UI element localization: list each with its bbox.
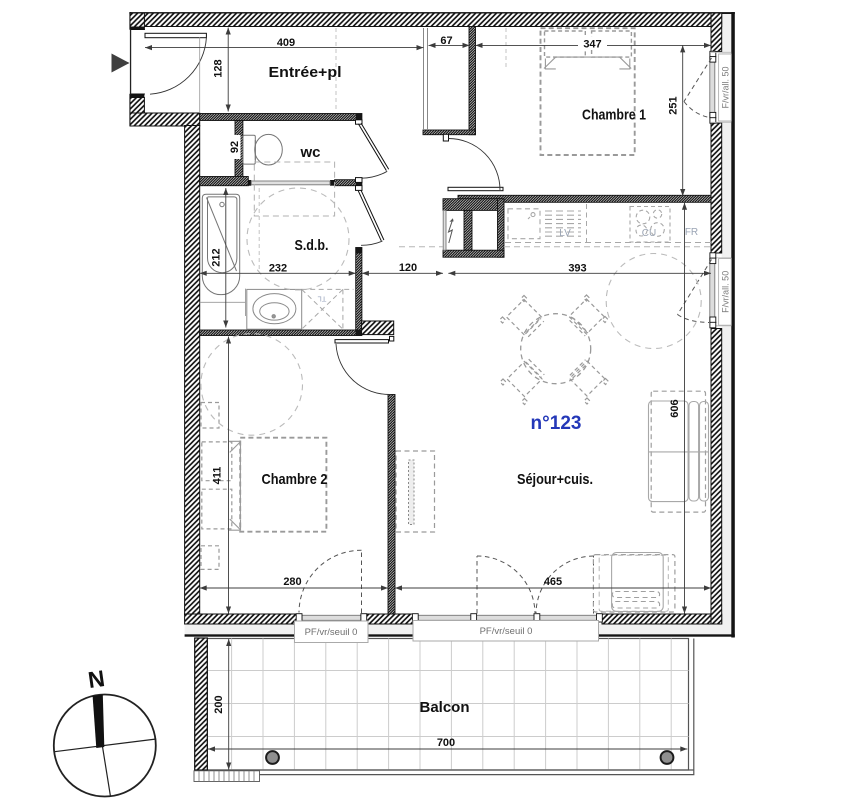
svg-text:280: 280 [283, 576, 301, 588]
svg-text:PF/vr/seuil 0: PF/vr/seuil 0 [305, 627, 358, 638]
svg-text:Balcon: Balcon [419, 699, 469, 716]
svg-text:67: 67 [440, 35, 452, 47]
svg-text:TL: TL [318, 295, 327, 304]
svg-text:n°123: n°123 [531, 413, 582, 434]
svg-text:F/vr/all. 50: F/vr/all. 50 [721, 271, 731, 313]
svg-text:F/vr/all. 50: F/vr/all. 50 [721, 66, 731, 108]
svg-text:200: 200 [213, 695, 225, 713]
svg-text:PF/vr/seuil 0: PF/vr/seuil 0 [480, 626, 533, 637]
svg-text:347: 347 [583, 39, 601, 51]
svg-text:128: 128 [213, 59, 225, 77]
svg-text:465: 465 [544, 576, 562, 588]
svg-text:N: N [86, 665, 106, 693]
svg-text:409: 409 [277, 37, 295, 49]
svg-text:606: 606 [669, 399, 681, 417]
svg-text:LV: LV [559, 228, 571, 239]
svg-text:212: 212 [211, 248, 223, 266]
svg-text:Chambre 1: Chambre 1 [582, 107, 646, 124]
svg-text:CU: CU [642, 228, 656, 239]
svg-text:Chambre 2: Chambre 2 [262, 471, 328, 488]
svg-text:Séjour+cuis.: Séjour+cuis. [517, 471, 593, 488]
svg-text:393: 393 [568, 263, 586, 275]
svg-text:S.d.b.: S.d.b. [295, 237, 329, 254]
svg-text:wc: wc [299, 144, 320, 161]
svg-text:FR: FR [685, 227, 698, 238]
svg-text:700: 700 [437, 737, 455, 749]
svg-text:232: 232 [269, 263, 287, 275]
svg-text:92: 92 [229, 141, 241, 153]
svg-text:Entrée+pl: Entrée+pl [269, 64, 342, 81]
svg-text:251: 251 [668, 96, 680, 114]
svg-text:120: 120 [399, 262, 417, 274]
svg-text:411: 411 [212, 467, 224, 485]
